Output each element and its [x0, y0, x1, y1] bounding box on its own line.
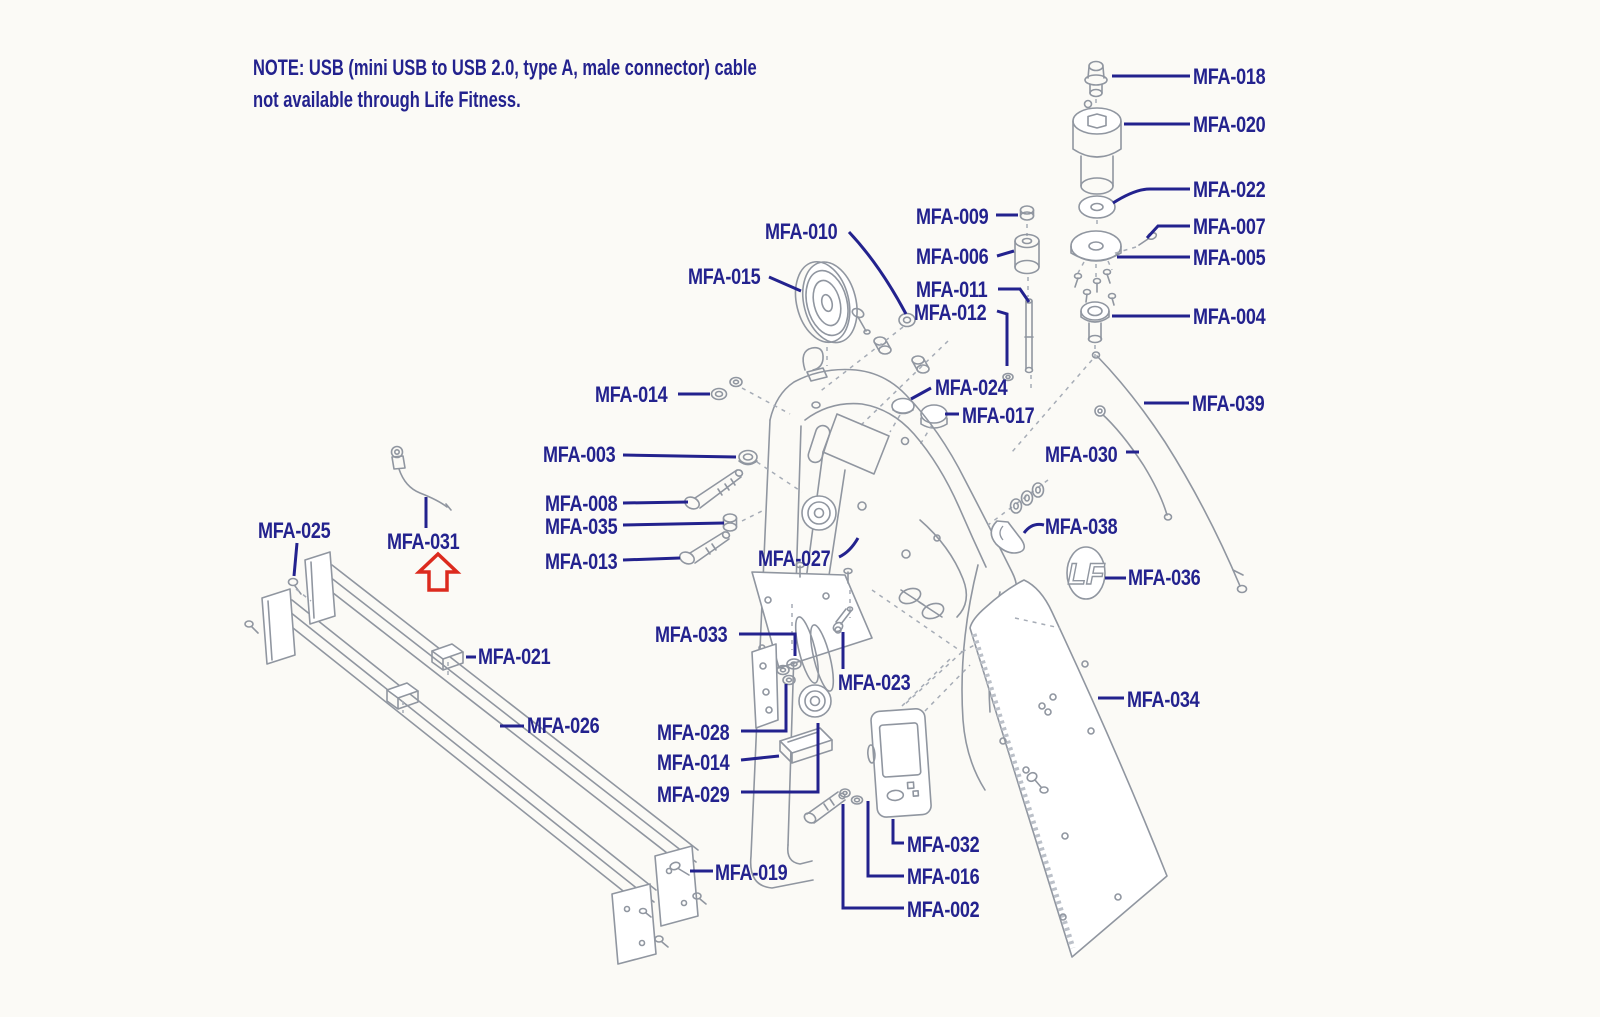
- label-mfa-029: MFA-029: [657, 782, 729, 808]
- label-mfa-021: MFA-021: [478, 644, 550, 670]
- label-mfa-032: MFA-032: [907, 832, 979, 858]
- small-screws-cluster: [1075, 270, 1116, 306]
- note-line-1: NOTE: USB (mini USB to USB 2.0, type A, …: [253, 52, 757, 84]
- label-mfa-030: MFA-030: [1045, 442, 1117, 468]
- label-mfa-024: MFA-024: [935, 375, 1007, 401]
- rails-assembly-drawing: [245, 552, 706, 964]
- label-mfa-005: MFA-005: [1193, 245, 1265, 271]
- note-line-2: not available through Life Fitness.: [253, 84, 757, 116]
- label-mfa-002: MFA-002: [907, 897, 979, 923]
- rods-drawing: [1093, 352, 1247, 593]
- diagram-line-art: LF: [0, 0, 1600, 1017]
- label-mfa-023: MFA-023: [838, 670, 910, 696]
- left-fasteners-drawing: [678, 378, 802, 567]
- label-mfa-020: MFA-020: [1193, 112, 1265, 138]
- label-mfa-016: MFA-016: [907, 864, 979, 890]
- label-mfa-036: MFA-036: [1128, 565, 1200, 591]
- label-mfa-007: MFA-007: [1193, 214, 1265, 240]
- note-text: NOTE: USB (mini USB to USB 2.0, type A, …: [253, 52, 757, 116]
- label-mfa-003: MFA-003: [543, 442, 615, 468]
- red-arrow-icon: [419, 554, 457, 590]
- label-mfa-034: MFA-034: [1127, 687, 1199, 713]
- label-mfa-025: MFA-025: [258, 518, 330, 544]
- label-mfa-028: MFA-028: [657, 720, 729, 746]
- label-mfa-038: MFA-038: [1045, 514, 1117, 540]
- label-mfa-033: MFA-033: [655, 622, 727, 648]
- label-mfa-035: MFA-035: [545, 514, 617, 540]
- label-mfa-039: MFA-039: [1192, 391, 1264, 417]
- side-panel-drawing: [970, 580, 1167, 957]
- lf-logo-icon: LF: [1067, 547, 1105, 599]
- label-mfa-014-upper: MFA-014: [595, 382, 667, 408]
- label-mfa-015: MFA-015: [688, 264, 760, 290]
- label-mfa-012: MFA-012: [914, 300, 986, 326]
- label-mfa-031: MFA-031: [387, 529, 459, 555]
- label-mfa-027: MFA-027: [758, 546, 830, 572]
- label-mfa-019: MFA-019: [715, 860, 787, 886]
- label-mfa-006: MFA-006: [916, 244, 988, 270]
- cable-mfa031-drawing: [392, 447, 452, 511]
- label-mfa-004: MFA-004: [1193, 304, 1265, 330]
- label-mfa-026: MFA-026: [527, 713, 599, 739]
- label-mfa-013: MFA-013: [545, 549, 617, 575]
- parts-diagram-page: LF: [0, 0, 1600, 1017]
- label-mfa-022: MFA-022: [1193, 177, 1265, 203]
- label-mfa-009: MFA-009: [916, 204, 988, 230]
- label-mfa-014-lower: MFA-014: [657, 750, 729, 776]
- label-mfa-017: MFA-017: [962, 403, 1034, 429]
- label-mfa-018: MFA-018: [1193, 64, 1265, 90]
- svg-text:LF: LF: [1068, 558, 1105, 591]
- label-mfa-010: MFA-010: [765, 219, 837, 245]
